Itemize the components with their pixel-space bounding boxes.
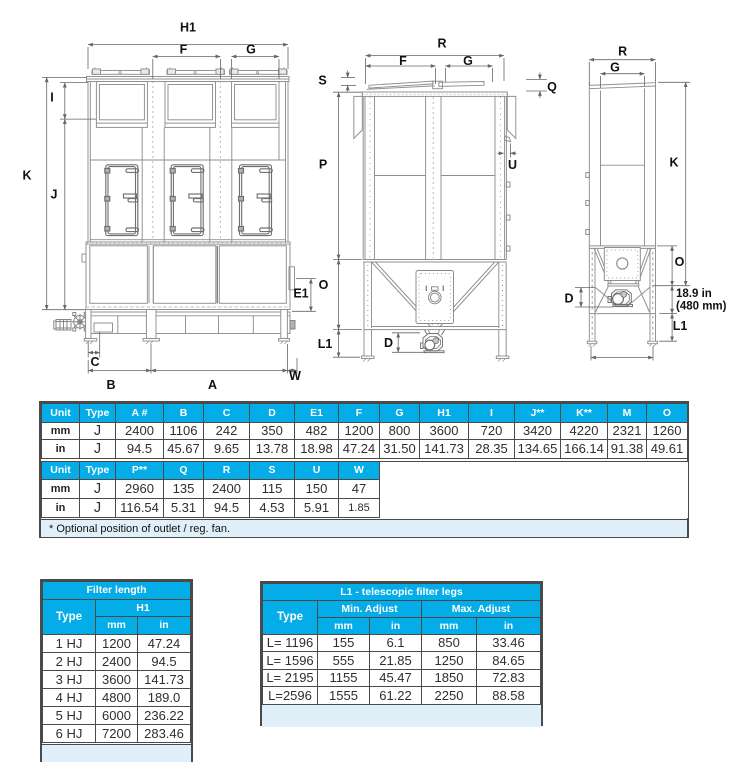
svg-text:R: R (437, 37, 446, 51)
svg-text:G: G (610, 61, 620, 75)
svg-text:D: D (384, 336, 393, 350)
svg-text:Q: Q (547, 80, 557, 94)
svg-text:K: K (669, 156, 678, 170)
svg-text:D: D (564, 292, 573, 306)
svg-text:F: F (399, 54, 407, 68)
svg-text:G: G (463, 54, 473, 68)
svg-text:W: W (289, 369, 301, 383)
svg-text:L1: L1 (318, 337, 333, 351)
svg-text:O: O (675, 255, 685, 269)
svg-text:E1: E1 (293, 287, 308, 301)
svg-text:I: I (50, 91, 53, 105)
svg-text:R: R (618, 45, 627, 59)
svg-text:L1: L1 (673, 319, 688, 333)
svg-text:K: K (22, 169, 31, 183)
svg-text:B: B (106, 378, 115, 392)
svg-text:18.9 in: 18.9 in (676, 288, 712, 300)
svg-text:H1: H1 (180, 21, 196, 35)
svg-text:(480 mm): (480 mm) (676, 301, 727, 313)
svg-text:S: S (318, 74, 326, 88)
svg-text:O: O (319, 278, 329, 292)
svg-text:J: J (51, 188, 58, 202)
svg-text:A: A (208, 378, 217, 392)
svg-text:C: C (90, 355, 99, 369)
svg-text:F: F (180, 43, 188, 57)
svg-text:U: U (508, 158, 517, 172)
svg-text:P: P (319, 158, 327, 172)
svg-text:G: G (246, 43, 256, 57)
